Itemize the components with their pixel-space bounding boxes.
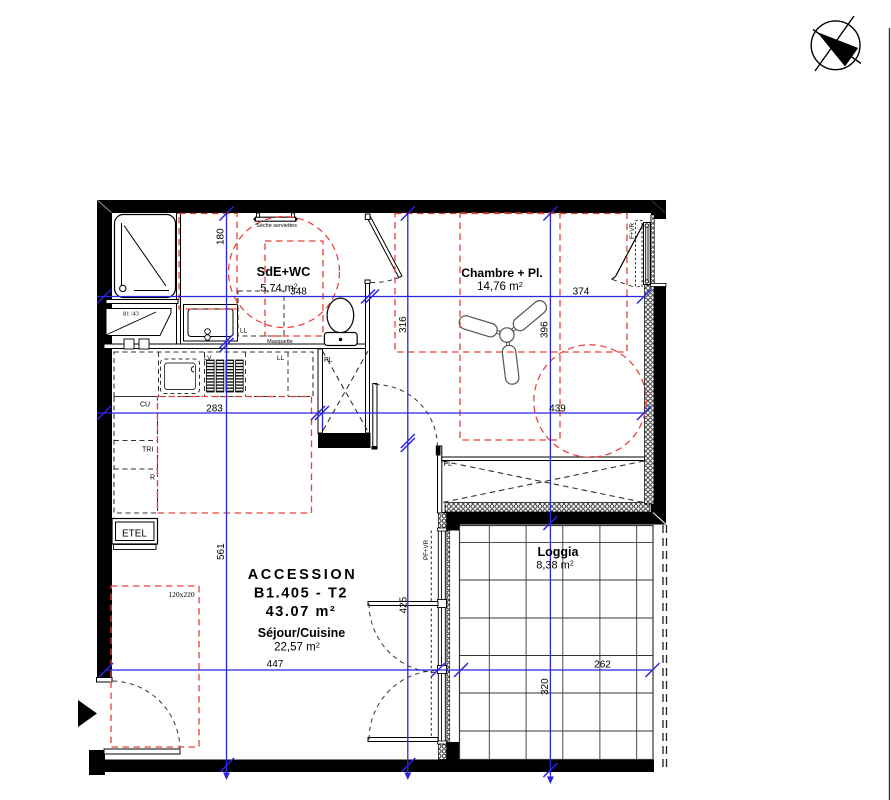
svg-text:43.07 m²: 43.07 m² [266,604,337,620]
svg-text:LV: LV [204,355,212,362]
svg-text:R: R [150,475,155,482]
svg-text:374: 374 [573,287,590,298]
svg-text:14,76 m2: 14,76 m2 [477,280,523,293]
svg-text:320: 320 [540,678,551,695]
svg-text:81 /43: 81 /43 [123,311,139,318]
svg-text:B1.405 - T2: B1.405 - T2 [254,586,348,602]
svg-text:Masquette: Masquette [267,339,293,345]
svg-text:8,38 m2: 8,38 m2 [536,560,574,572]
svg-text:561: 561 [216,543,227,560]
svg-text:Séjour/Cuisine: Séjour/Cuisine [258,626,346,640]
svg-text:283: 283 [206,404,223,415]
svg-text:262: 262 [594,660,611,671]
svg-text:5,74 m2: 5,74 m2 [260,283,298,295]
svg-text:PL: PL [444,461,453,468]
svg-text:PF+VR: PF+VR [423,539,430,560]
svg-text:120x220: 120x220 [168,590,195,599]
svg-text:439: 439 [549,404,566,415]
svg-text:SdE+WC: SdE+WC [257,264,311,279]
svg-text:316: 316 [398,316,409,333]
svg-text:22,57 m2: 22,57 m2 [274,641,320,654]
svg-text:180: 180 [216,228,227,245]
svg-text:LL: LL [240,328,248,335]
svg-text:LL: LL [277,355,285,362]
svg-text:Sèche serviettes: Sèche serviettes [256,223,297,229]
svg-text:CU: CU [140,402,150,409]
svg-text:F+VR: F+VR [629,222,636,239]
svg-text:447: 447 [267,659,284,670]
svg-text:425: 425 [399,596,410,613]
svg-text:Loggia: Loggia [538,545,580,559]
svg-text:PL: PL [324,357,333,364]
svg-text:396: 396 [540,321,551,338]
svg-text:Chambre + Pl.: Chambre + Pl. [461,266,543,280]
svg-text:ETEL: ETEL [122,529,147,540]
svg-text:ACCESSION: ACCESSION [248,567,358,583]
svg-text:TRI: TRI [142,447,153,454]
